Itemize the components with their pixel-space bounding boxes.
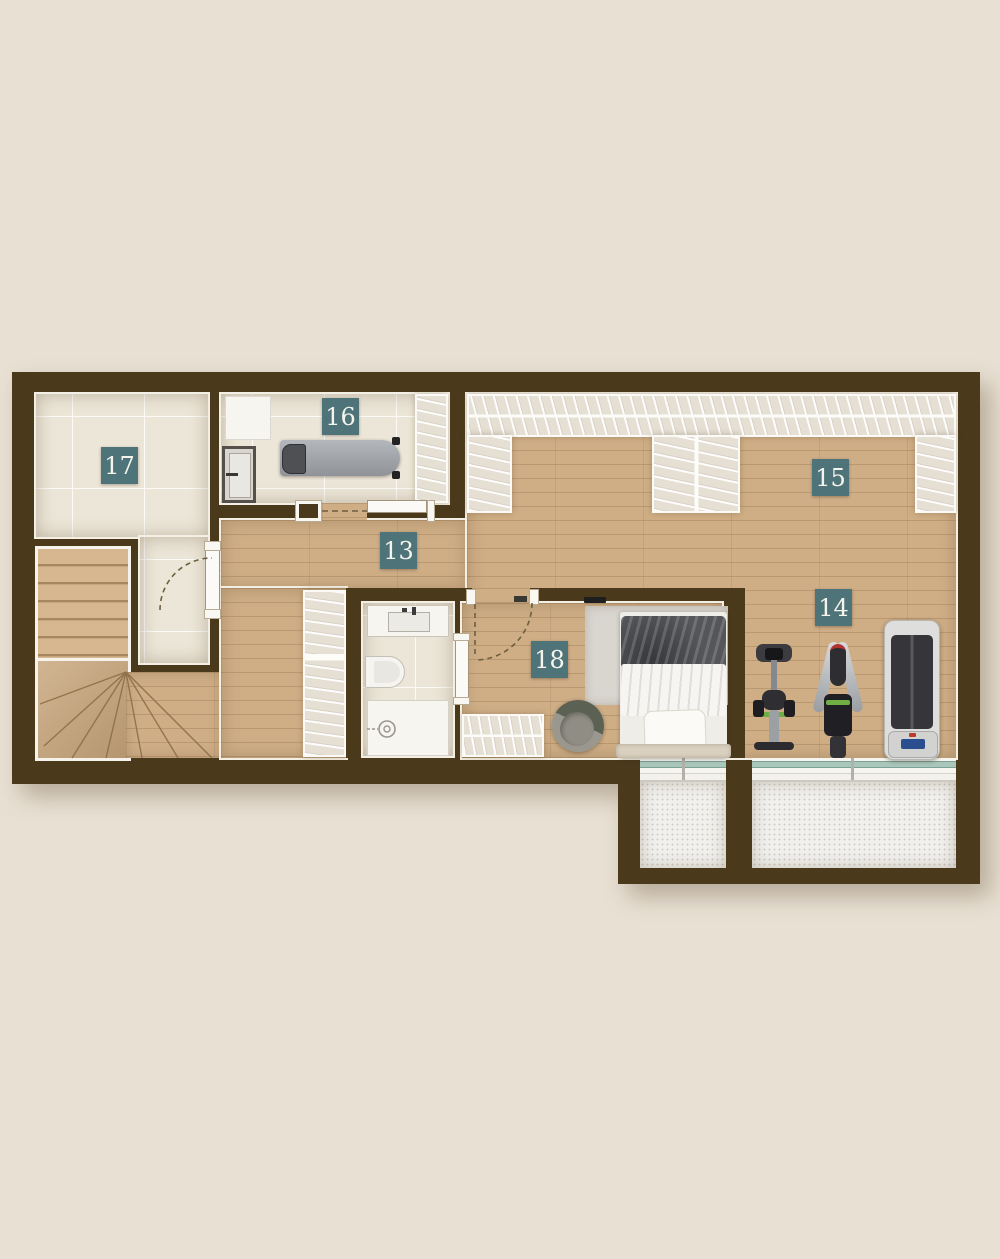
floor-plan: 17 16 13 15 14 18	[0, 0, 1000, 1259]
bike-console	[765, 648, 783, 660]
laundry-appliance	[225, 396, 271, 440]
board-leg	[392, 471, 400, 479]
bathroom-door-jamb	[453, 633, 470, 641]
vanity-counter	[367, 605, 449, 637]
window-mullion	[851, 758, 854, 780]
treadmill	[884, 620, 940, 760]
hall-door-leaf	[205, 550, 220, 610]
hall-closet	[303, 590, 346, 757]
bike-pedal	[753, 700, 764, 717]
bed-sheet	[621, 664, 726, 716]
ironing-board	[280, 440, 400, 476]
board-leg	[392, 437, 400, 445]
elliptical-accent	[826, 700, 850, 705]
room-number: 13	[383, 539, 414, 563]
bike-stem	[771, 660, 777, 694]
utility-cabinet	[222, 446, 256, 503]
staircase-winders	[38, 661, 128, 758]
toilet-bowl	[374, 661, 400, 683]
bed	[620, 612, 727, 758]
stair-landing-floor	[126, 672, 221, 758]
elliptical-pad	[830, 644, 846, 686]
bathroom-door-jamb	[453, 697, 470, 705]
exercise-bike	[752, 642, 796, 754]
wardrobe-room16	[415, 394, 448, 503]
bedroom-door-latch	[514, 596, 527, 602]
toilet	[365, 656, 405, 688]
room-label-18: 18	[531, 641, 568, 678]
room-label-15: 15	[812, 459, 849, 496]
bedroom-dresser	[462, 714, 544, 757]
bedroom-door-jamb	[466, 589, 476, 605]
door-jamb	[204, 541, 221, 551]
sliding-door-panel	[367, 500, 427, 513]
sliding-door-jamb	[295, 500, 322, 522]
armchair	[552, 700, 604, 752]
room-label-17: 17	[101, 447, 138, 484]
cabinet-handle	[226, 473, 238, 476]
jamb-core	[299, 504, 318, 518]
hallway-13-floor-upper	[221, 520, 467, 590]
room-number: 18	[534, 648, 565, 672]
bathroom-door-leaf	[455, 640, 469, 698]
terrace-right-floor	[752, 780, 956, 868]
bike-base	[754, 742, 794, 750]
room-17-floor-lower	[140, 537, 208, 663]
shower-pan	[367, 700, 449, 756]
wardrobe-column-right	[915, 435, 956, 513]
armchair-seat	[560, 712, 594, 746]
treadmill-display	[901, 739, 925, 749]
room-label-13: 13	[380, 532, 417, 569]
bedroom-door-jamb	[529, 589, 539, 605]
terrace-left-floor	[640, 780, 726, 868]
iron	[282, 444, 306, 474]
wardrobe-column-left	[467, 435, 512, 513]
room-label-14: 14	[815, 589, 852, 626]
room-number: 16	[325, 405, 356, 429]
faucet	[412, 607, 416, 615]
bike-seat	[762, 690, 786, 710]
elliptical-trainer	[810, 638, 866, 760]
sliding-door-jamb	[427, 500, 435, 522]
bedroom-window	[640, 758, 726, 780]
room-number: 15	[815, 466, 846, 490]
faucet-knob	[402, 608, 407, 612]
door-jamb	[204, 609, 221, 619]
room-number: 17	[104, 454, 135, 478]
bike-pedal	[784, 700, 795, 717]
staircase-treads	[38, 549, 128, 661]
bike-frame	[769, 710, 779, 744]
sink-basin	[388, 612, 430, 632]
treadmill-button	[909, 733, 916, 737]
room-number: 14	[818, 596, 849, 620]
sliding-door-opening	[322, 503, 367, 520]
wall-tv	[584, 597, 606, 603]
room-label-16: 16	[322, 398, 359, 435]
wardrobe-column-middle	[652, 435, 740, 513]
headboard	[616, 744, 731, 758]
gym-window	[752, 758, 956, 780]
wardrobe-band-room15	[467, 394, 956, 437]
elliptical-base	[830, 736, 846, 758]
treadmill-belt	[891, 635, 933, 729]
window-mullion	[682, 758, 685, 780]
